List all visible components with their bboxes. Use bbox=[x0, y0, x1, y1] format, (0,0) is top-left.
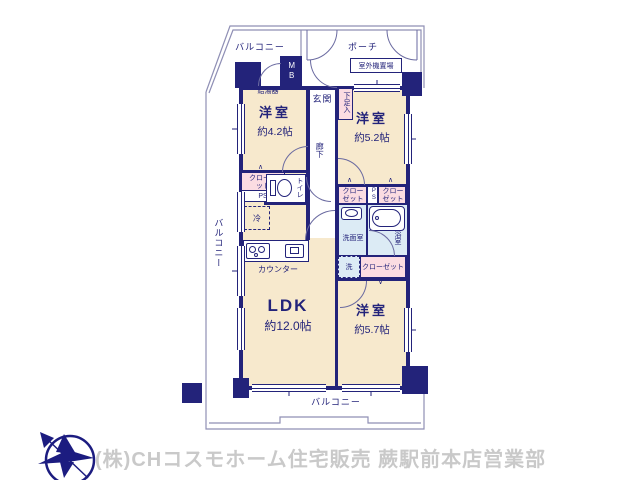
balcony-bottom-notch bbox=[209, 417, 421, 423]
window-ldk-left-2 bbox=[237, 246, 245, 296]
bathtub-drain-icon bbox=[375, 216, 379, 220]
w3-name: 洋室 bbox=[340, 304, 404, 319]
closet-b-label: クローゼット bbox=[381, 188, 405, 204]
kitchen-faucet-icon bbox=[290, 247, 299, 254]
outdoor-unit-space: 室外機置場 bbox=[350, 58, 402, 73]
window-w2-top bbox=[354, 84, 400, 92]
balcony-top-label: バルコニー bbox=[228, 42, 292, 52]
toilet-bowl-icon bbox=[277, 179, 292, 197]
chevron-closet-bar: ∨ bbox=[378, 279, 383, 286]
closet-bar-label: クローゼット bbox=[361, 264, 405, 272]
porch-door-arc-left bbox=[307, 30, 337, 60]
refrigerator-space: 冷 bbox=[244, 206, 270, 230]
water-heater-label: 給湯器 bbox=[248, 88, 288, 96]
pillar-southeast bbox=[402, 366, 428, 394]
stove-burner-right-icon bbox=[258, 246, 265, 253]
pillar-northeast bbox=[402, 72, 422, 96]
w3-size: 約5.7帖 bbox=[340, 324, 404, 336]
washer-label: 洗 bbox=[339, 264, 359, 272]
chevron-closet-a: ∧ bbox=[347, 177, 352, 184]
hallway-label: 廊下 bbox=[315, 142, 324, 158]
bathroom-label: 浴室 bbox=[393, 231, 401, 245]
balcony-bottom-label: バルコニー bbox=[296, 397, 376, 407]
washer-space: 洗 bbox=[338, 256, 360, 278]
washroom-label: 洗面室 bbox=[341, 235, 365, 243]
w1-size: 約4.2帖 bbox=[243, 126, 307, 138]
window-w3-right bbox=[404, 308, 412, 352]
entrance-label: 玄関 bbox=[310, 94, 335, 104]
toilet-label: トイレ bbox=[295, 177, 303, 198]
closet-b: クローゼット bbox=[378, 186, 406, 204]
refrigerator-label: 冷 bbox=[245, 214, 269, 223]
closet-a: クローゼット bbox=[338, 186, 367, 204]
closet-a-label: クローゼット bbox=[341, 188, 365, 204]
balcony-left-label: バルコニー bbox=[213, 218, 223, 268]
closet-bar: クローゼット bbox=[360, 256, 406, 278]
window-w2-right bbox=[404, 114, 412, 164]
chevron-closet-west: ∧ bbox=[258, 164, 263, 171]
w2-name: 洋室 bbox=[340, 112, 404, 127]
chevron-closet-b: ∧ bbox=[388, 177, 393, 184]
w2-size: 約5.2帖 bbox=[340, 132, 404, 144]
window-ldk-left-1 bbox=[237, 192, 245, 232]
pipe-space-east-label: PS bbox=[370, 188, 377, 202]
porch-label: ポーチ bbox=[338, 42, 388, 52]
window-ldk-bottom bbox=[252, 384, 326, 392]
stove-burner-small-icon bbox=[254, 253, 258, 257]
pillar-southwest bbox=[233, 378, 249, 398]
w1-name: 洋室 bbox=[243, 106, 307, 121]
outdoor-unit-label: 室外機置場 bbox=[351, 63, 401, 71]
porch-door-arc-right bbox=[387, 30, 417, 60]
pipe-space-east: PS bbox=[367, 186, 378, 204]
floorplan-page: { "colors": { "wall_navy": "#23237a", "r… bbox=[0, 0, 640, 480]
window-ldk-left-3 bbox=[237, 308, 245, 350]
meter-box: MB bbox=[280, 56, 302, 88]
bird-tail bbox=[60, 462, 74, 478]
stove-burner-left-icon bbox=[249, 246, 256, 253]
company-name: (株)CHコスモホーム住宅販売 蕨駅前本店営業部 bbox=[95, 443, 546, 472]
ldk-name: LDK bbox=[256, 296, 320, 316]
counter-label: カウンター bbox=[248, 265, 308, 274]
toilet-tank-icon bbox=[270, 180, 276, 196]
window-w3-bottom bbox=[342, 384, 400, 392]
shoe-storage-label: 下足入 bbox=[342, 92, 350, 113]
washbasin-bowl-icon bbox=[345, 209, 358, 217]
meter-box-label: MB bbox=[287, 61, 296, 81]
pillar-southwest-outer bbox=[182, 383, 202, 403]
ldk-size: 約12.0帖 bbox=[252, 320, 324, 334]
